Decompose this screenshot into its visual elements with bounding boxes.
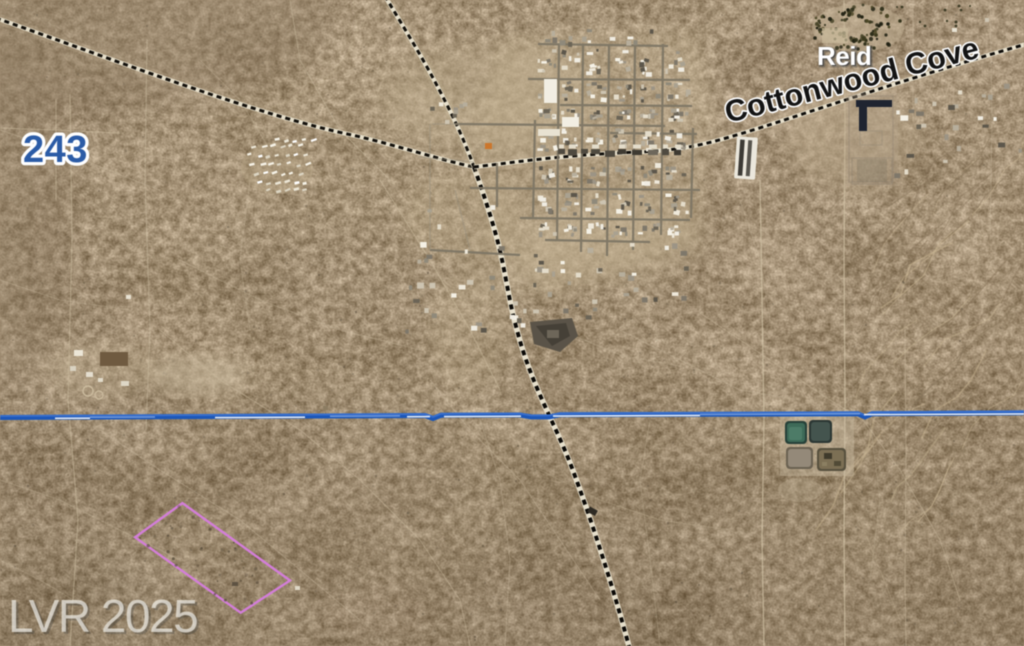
svg-text:LVR 2025: LVR 2025 — [8, 590, 197, 642]
svg-text:243: 243 — [23, 129, 88, 171]
svg-text:Reid: Reid — [817, 41, 871, 71]
